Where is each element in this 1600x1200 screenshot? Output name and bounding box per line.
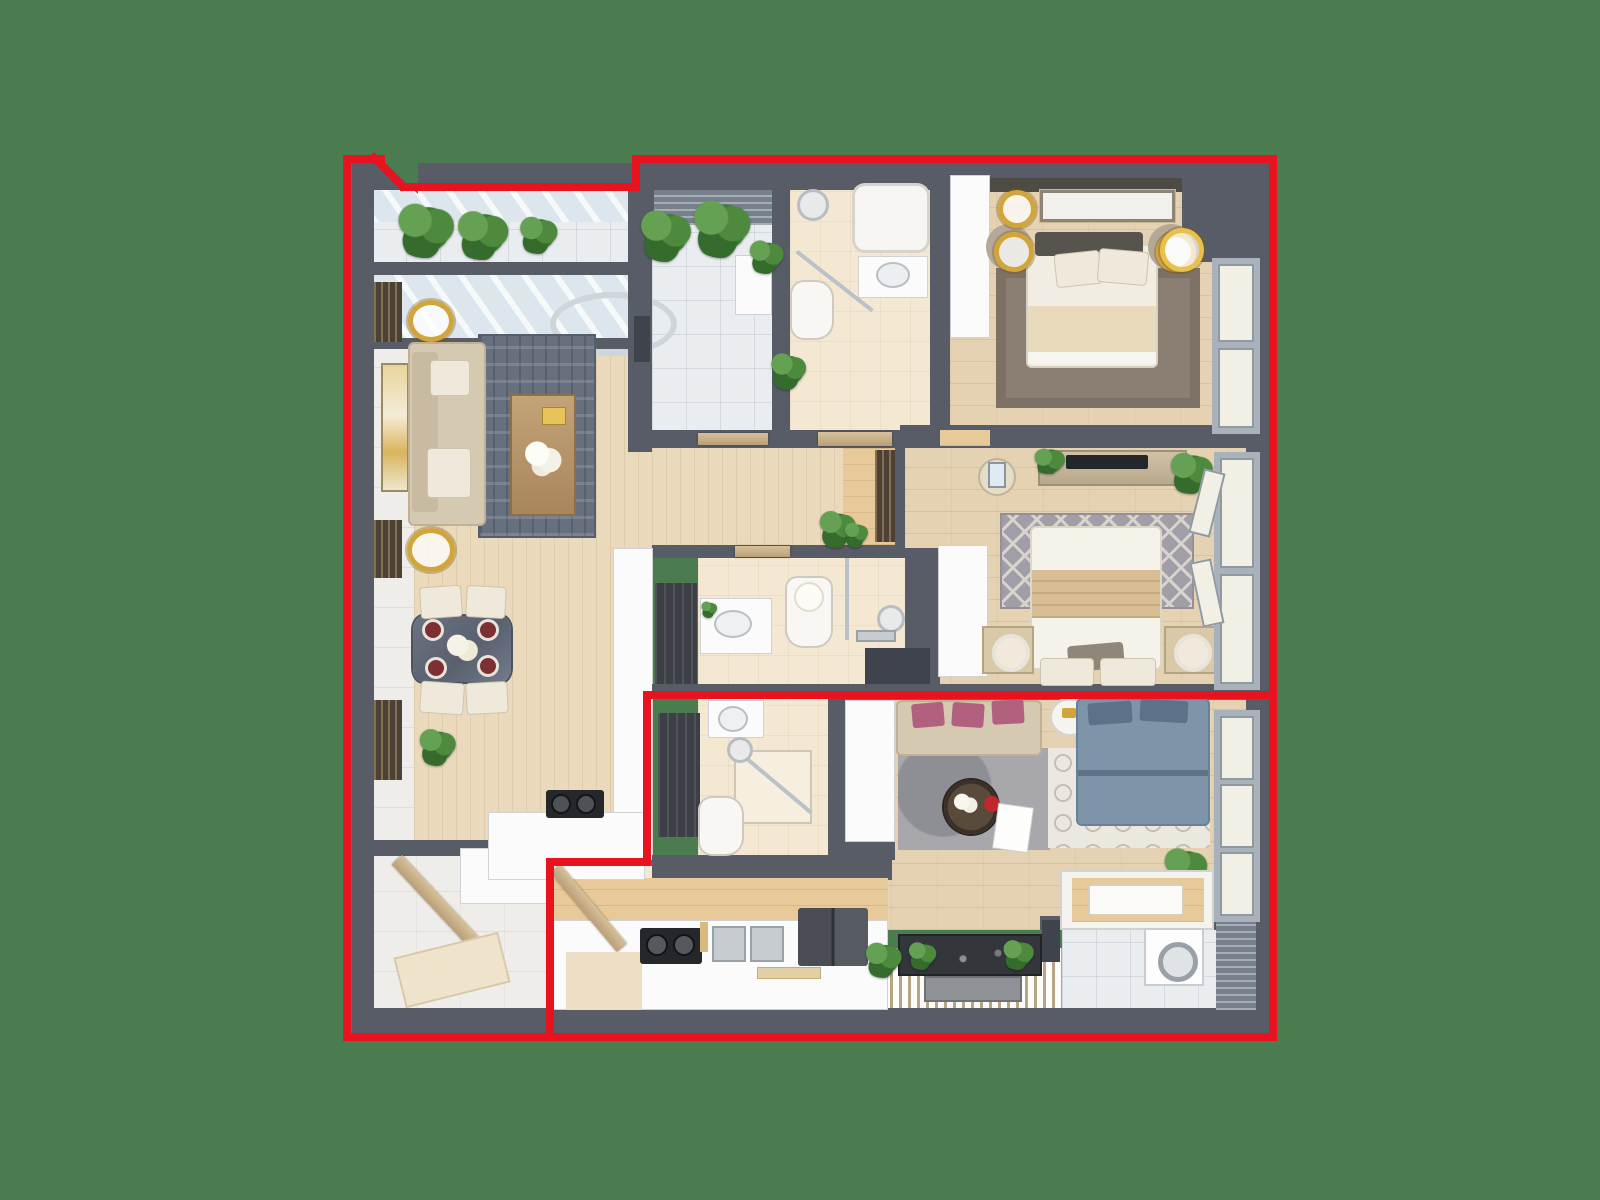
bedroom2-tv bbox=[1066, 455, 1148, 469]
dining-plate-4 bbox=[480, 658, 496, 674]
dining-chair-3 bbox=[419, 681, 465, 716]
bedroom1-bed-footer bbox=[1028, 352, 1156, 364]
outline-mid-vertical-upper bbox=[643, 691, 651, 866]
bathroom1-right-wall bbox=[930, 163, 950, 448]
masterbath-plant-sprig bbox=[700, 600, 718, 618]
bathroom1-corridor-plant bbox=[768, 350, 808, 390]
balcony-plant-leafy bbox=[862, 940, 904, 978]
studio-pink-pillow-1 bbox=[911, 702, 945, 729]
bathroom1-left-wall bbox=[772, 163, 790, 448]
bedroom1-pillow-2 bbox=[1097, 248, 1150, 286]
masterbath-dark-cabinet bbox=[865, 648, 930, 688]
closet-nook-right-wall bbox=[895, 445, 905, 548]
studio-table-flowers bbox=[950, 790, 980, 816]
outline-bottom-edge bbox=[343, 1033, 1277, 1041]
kitchen-sink-basin-2 bbox=[750, 926, 784, 962]
studio-window-pane-1 bbox=[1220, 716, 1254, 780]
kitchen-burner-2 bbox=[675, 936, 693, 954]
outline-mid-jog-horizontal bbox=[546, 858, 651, 866]
coffee-table-flowers bbox=[518, 436, 566, 480]
kitchen-cutting-board bbox=[758, 968, 820, 978]
bedroom1-window-pane-2 bbox=[1218, 348, 1254, 428]
kitchen-sink-basin-1 bbox=[712, 926, 746, 962]
bedroom2-window-pane-2 bbox=[1220, 574, 1254, 684]
balcony-plant-2 bbox=[452, 208, 512, 260]
masterbath-shower-glass bbox=[845, 558, 849, 640]
outline-mid-vertical-lower bbox=[546, 858, 554, 1041]
bathroom2-right-wall bbox=[828, 698, 845, 858]
masterbath-ceiling-light bbox=[796, 584, 822, 610]
utility-plant-1 bbox=[636, 206, 694, 262]
living-balcony-beam bbox=[352, 262, 642, 275]
bedroom2-door-gap bbox=[940, 430, 990, 446]
balcony-plant-1 bbox=[392, 200, 458, 258]
outline-right-edge bbox=[1269, 155, 1277, 1041]
sofa-pillow-2 bbox=[427, 448, 471, 498]
dining-chair-1 bbox=[419, 585, 463, 620]
bedroom2-pillow-2 bbox=[1100, 658, 1156, 686]
floorplan-canvas bbox=[0, 0, 1600, 1200]
gold-wall-art bbox=[383, 365, 407, 490]
studio-dining-table-board bbox=[1090, 886, 1182, 914]
balcony-inset-tray bbox=[926, 978, 1020, 1000]
utility-wall-shelf bbox=[634, 316, 650, 362]
bedroom2-photo-frame bbox=[990, 464, 1004, 486]
utility-plant-2 bbox=[688, 196, 754, 258]
bathroom2-shower-tray bbox=[736, 752, 810, 822]
refrigerator bbox=[798, 908, 868, 966]
wall-above-kitchen bbox=[652, 855, 892, 880]
kitchen-burner-1 bbox=[648, 936, 666, 954]
bathtub bbox=[855, 186, 927, 250]
bathroom2-shower-head bbox=[730, 740, 750, 760]
grill-plant-left bbox=[906, 940, 938, 970]
daybed-navy-pillow-2 bbox=[1139, 699, 1188, 723]
bathroom1-sink-basin bbox=[878, 264, 908, 286]
washing-machine-door bbox=[1158, 942, 1198, 982]
balcony-corner-post bbox=[1042, 920, 1060, 962]
masterbath-shower-head bbox=[880, 608, 902, 630]
closet-nook-wardrobe bbox=[875, 450, 895, 542]
dining-plant bbox=[416, 726, 458, 766]
outline-left-edge bbox=[343, 155, 351, 1041]
bedroom2-sphere-lamp-right bbox=[1174, 634, 1212, 672]
peninsula-burner-2 bbox=[578, 796, 594, 812]
kitchen-peninsula-counter bbox=[488, 812, 645, 880]
utility-balcony-door-threshold bbox=[698, 433, 768, 445]
balcony-plant-3 bbox=[516, 214, 560, 254]
bedroom1-lamp-left bbox=[994, 232, 1034, 272]
bathroom2-sink-basin bbox=[720, 708, 746, 730]
wall-left bbox=[352, 163, 374, 1034]
side-table-ring-lamp-bottom bbox=[407, 528, 455, 572]
outline-mid-horizontal bbox=[643, 691, 1277, 699]
bedroom2-closet bbox=[938, 545, 988, 677]
dining-plate-3 bbox=[428, 660, 444, 676]
bathroom2-toilet bbox=[700, 798, 742, 854]
bedroom1-wardrobe bbox=[950, 175, 990, 338]
dining-plate-2 bbox=[480, 622, 496, 638]
bedroom2-pillow-1 bbox=[1040, 658, 1094, 686]
sofa-pillow-1 bbox=[430, 360, 470, 396]
bathroom1-toilet bbox=[792, 282, 832, 338]
bedroom1-lamp-left-upper bbox=[998, 190, 1036, 228]
kitchen-steps bbox=[566, 952, 642, 1010]
peninsula-burner-1 bbox=[553, 796, 569, 812]
bedroom1-gold-chandelier bbox=[1160, 228, 1204, 272]
masterbath-sink-basin bbox=[716, 612, 750, 636]
service-shaft-lower bbox=[658, 713, 700, 837]
coffee-table-gold-tray bbox=[543, 408, 565, 424]
studio-magazine bbox=[993, 804, 1033, 852]
media-panel-top bbox=[374, 282, 402, 342]
dining-plate-1 bbox=[425, 622, 441, 638]
daybed-navy-pillow-1 bbox=[1087, 700, 1132, 725]
master-bathroom-door-threshold bbox=[735, 546, 790, 557]
daybed-fold-line bbox=[1078, 770, 1208, 776]
media-panel-bottom bbox=[374, 700, 402, 780]
utility-plant-3 bbox=[746, 238, 786, 274]
service-shaft-upper bbox=[655, 583, 697, 685]
side-table-ring-lamp-top bbox=[408, 300, 454, 342]
studio-window-pane-2 bbox=[1220, 784, 1254, 848]
media-panel-mid bbox=[374, 520, 402, 578]
bedroom1-blanket bbox=[1028, 306, 1156, 352]
grill-plant-right bbox=[1000, 938, 1036, 970]
bedroom2-sphere-lamp-left bbox=[992, 634, 1030, 672]
outline-top-main-run bbox=[632, 155, 1277, 163]
bathroom1-door-threshold bbox=[818, 432, 892, 446]
closet-nook-plant bbox=[843, 520, 869, 548]
dining-centerpiece-flowers bbox=[440, 630, 484, 664]
studio-left-wardrobe bbox=[845, 700, 895, 842]
bedroom2-blanket bbox=[1032, 570, 1160, 618]
bedroom1-window-pane-1 bbox=[1218, 264, 1254, 342]
outline-top-lower-run bbox=[400, 183, 640, 191]
bedroom2-plant-console bbox=[1030, 448, 1068, 474]
dining-chair-2 bbox=[465, 585, 507, 619]
studio-window-pane-3 bbox=[1220, 852, 1254, 916]
masterbath-faucet-bar bbox=[856, 630, 896, 642]
wall-bottom bbox=[352, 1008, 1270, 1034]
studio-tray-gold-items bbox=[1062, 708, 1076, 718]
kitchen-utensils bbox=[700, 922, 708, 952]
bedroom1-pillow-1 bbox=[1053, 250, 1102, 289]
studio-pink-pillow-3 bbox=[991, 699, 1024, 725]
shower-head-bathroom1 bbox=[800, 192, 826, 218]
studio-pink-pillow-2 bbox=[951, 702, 985, 728]
dining-chair-4 bbox=[465, 681, 509, 715]
bedroom1-marble-panel bbox=[1040, 190, 1175, 222]
